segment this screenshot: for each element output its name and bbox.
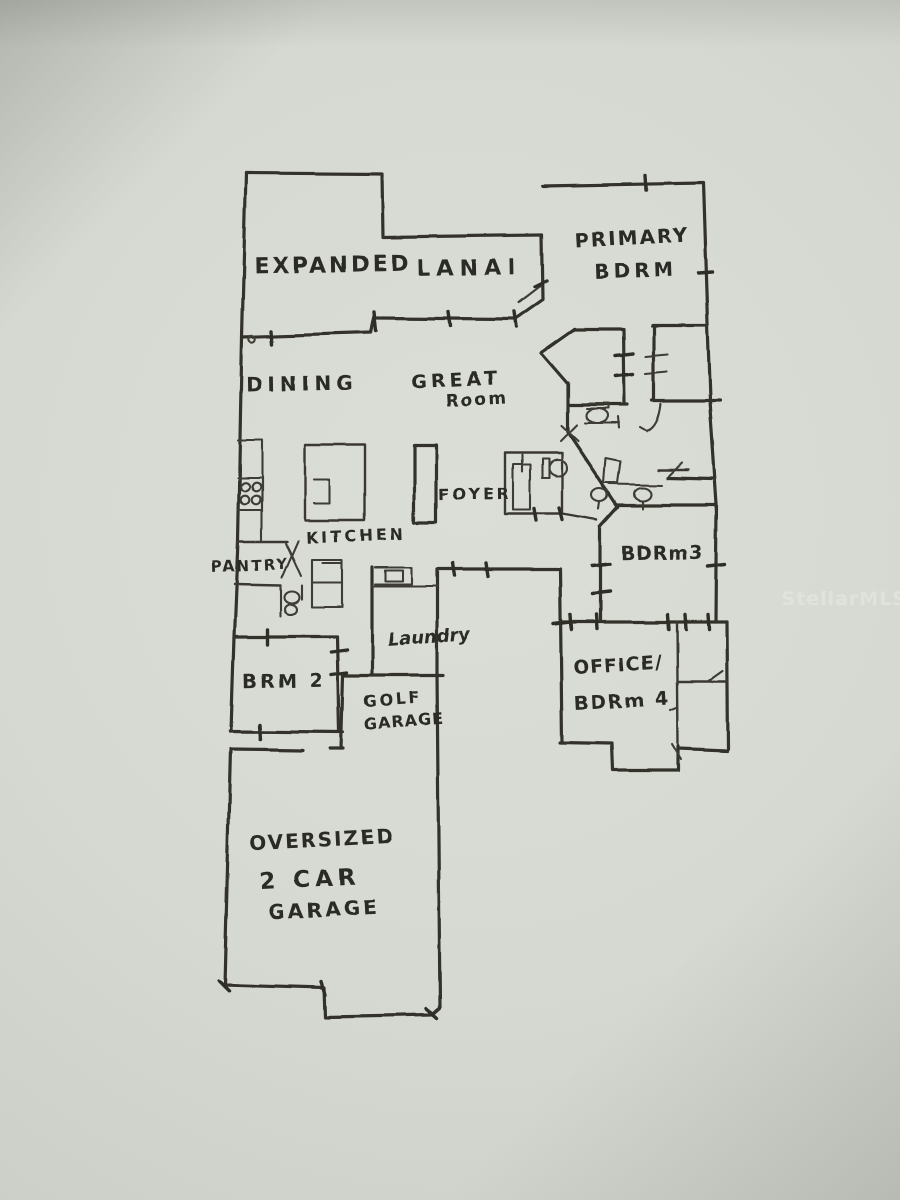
- room-label-primary-bdrm-1: PRIMARY: [574, 222, 691, 252]
- kitchen-wall-column: [414, 445, 436, 522]
- floor-plan-photo: EXPANDED LANAI PRIMARY BDRM DINING GREAT…: [0, 0, 900, 1200]
- primary-wc-toilet-icon: [585, 404, 619, 428]
- room-label-foyer: FOYER: [438, 484, 512, 504]
- room-label-pantry: PANTRY: [211, 555, 289, 576]
- room-label-dining: DINING: [246, 371, 358, 397]
- foyer-closet: [513, 455, 530, 510]
- room-label-great-room-2: Room: [445, 388, 508, 411]
- room-label-garage-1: OVERSIZED: [249, 824, 396, 856]
- room-label-lanai: LANAI: [416, 255, 521, 282]
- room-label-kitchen: KITCHEN: [306, 525, 406, 547]
- room-label-laundry: Laundry: [387, 624, 472, 651]
- room-label-golf-garage-2: GARAGE: [363, 709, 444, 734]
- powder-toilet-icon: [542, 459, 567, 478]
- room-label-primary-bdrm-2: BDRM: [594, 257, 678, 284]
- room-label-brm2: BRM 2: [242, 670, 325, 693]
- watermark-stellar-mls: StellarMLS: [781, 588, 900, 610]
- room-label-golf-garage-1: GOLF: [362, 687, 423, 710]
- laundry-sink-icon: [372, 567, 437, 586]
- cooktop-counter: [238, 440, 262, 540]
- bath2-toilet-icon: [281, 586, 302, 617]
- kitchen-island: [305, 445, 365, 520]
- room-label-office-bdrm4-1: OFFICE/: [572, 651, 663, 679]
- room-label-bdrm3: BDRm3: [620, 542, 703, 565]
- floor-plan-sketch: EXPANDED LANAI PRIMARY BDRM DINING GREAT…: [0, 0, 900, 1200]
- room-label-garage-3: GARAGE: [268, 895, 380, 925]
- kitchen-lower-counter: [312, 560, 342, 607]
- room-label-expanded-lanai: EXPANDED: [254, 252, 412, 280]
- room-label-garage-2: 2 CAR: [259, 864, 362, 895]
- room-label-office-bdrm4-2: BDRm 4: [573, 688, 671, 715]
- shower-icon: [604, 458, 621, 483]
